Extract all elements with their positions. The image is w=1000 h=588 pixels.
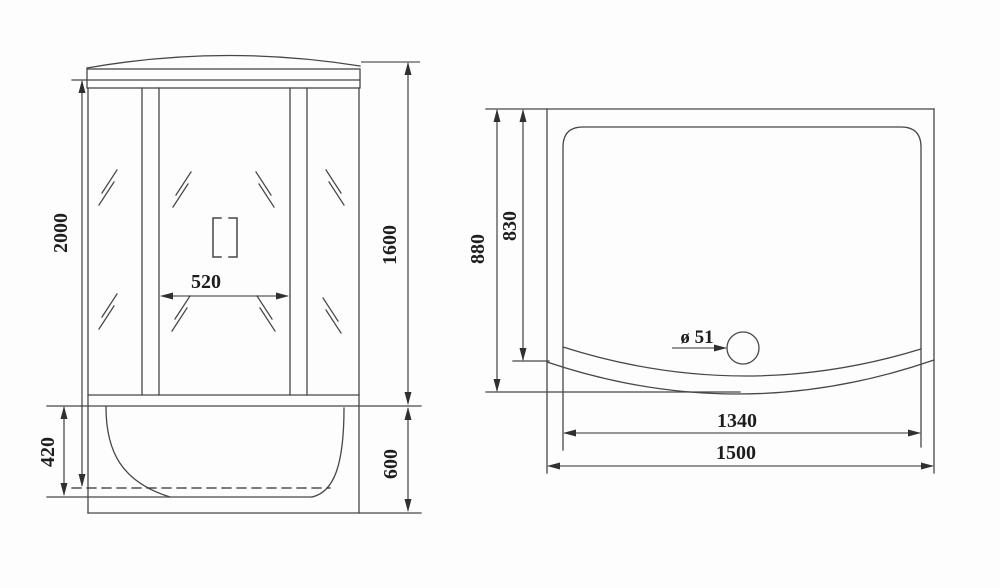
drain-hole [727,332,759,364]
technical-drawing-page: 2000 420 520 1600 600 880 830 ø 51 1340 … [0,0,1000,588]
tub-curve-left [106,407,170,497]
label-drain-diameter: ø 51 [680,327,713,348]
roof-arc [87,55,360,68]
label-width-1500: 1500 [716,442,756,464]
roof-band [87,69,360,88]
tub-curve-right [312,408,344,497]
front-view [47,55,421,513]
tray-front-curve-inner [563,347,921,376]
front-view-dimensions [64,62,420,511]
label-glass-height-1600: 1600 [379,225,401,265]
tray-inner-rim [563,127,921,450]
label-height-2000: 2000 [50,213,72,253]
door-handle [213,218,237,257]
label-depth-880: 880 [467,234,489,264]
label-tray-depth-420: 420 [37,437,59,467]
label-tray-height-600: 600 [380,449,402,479]
shower-cabin-technical-drawing: 2000 420 520 1600 600 880 830 ø 51 1340 … [0,0,1000,588]
label-door-width-520: 520 [191,271,221,293]
label-depth-830: 830 [499,211,521,241]
label-width-1340: 1340 [717,410,757,432]
top-view [486,109,934,473]
tray-front-curve-outer [547,360,934,394]
